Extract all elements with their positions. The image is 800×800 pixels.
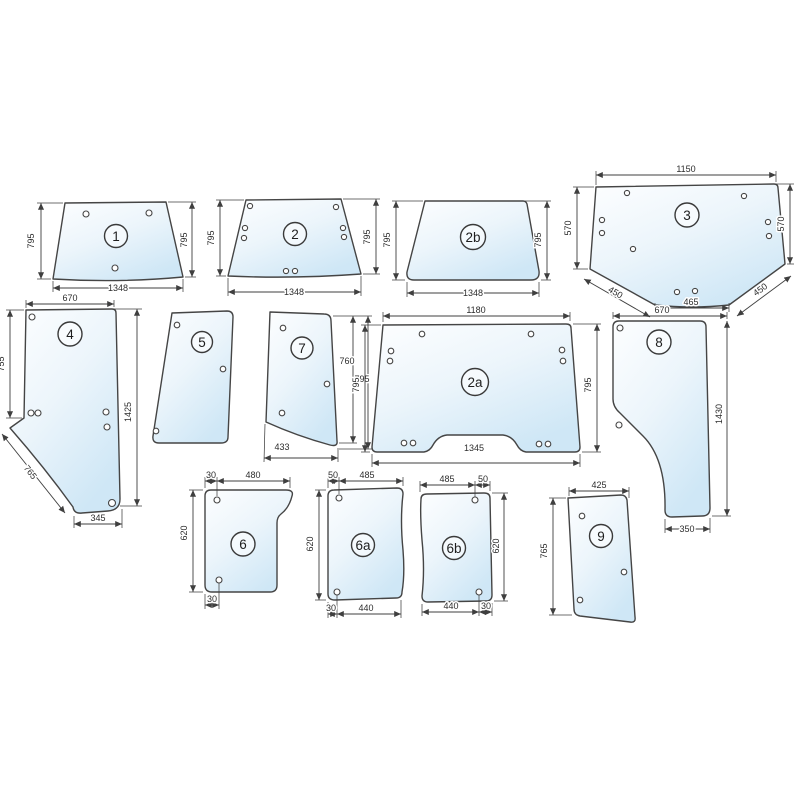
mounting-hole <box>765 219 770 224</box>
panel-9: 9 425 765 <box>539 480 635 622</box>
mounting-hole <box>472 497 478 503</box>
dim-value: 1345 <box>464 443 484 453</box>
dim-value: 570 <box>563 220 573 235</box>
dim-value: 795 <box>179 232 189 247</box>
glass-diagram-svg: 1 795 795 1348 2 <box>0 0 800 800</box>
panel-6a-dim-left: 620 <box>305 490 326 600</box>
mounting-hole <box>146 210 152 216</box>
dim-value: 570 <box>776 216 786 231</box>
panel-6-dim-left: 620 <box>179 490 203 592</box>
mounting-hole <box>279 410 285 416</box>
mounting-hole <box>334 589 340 595</box>
panel-5: 5 <box>153 311 233 443</box>
dim-value: 30 <box>206 470 216 480</box>
dim-value: 795 <box>206 230 216 245</box>
mounting-hole <box>333 204 338 209</box>
panel-5-number: 5 <box>198 335 206 350</box>
mounting-hole <box>577 597 583 603</box>
panel-8-dim-bottom: 350 <box>665 518 710 534</box>
panel-6: 6 30 480 620 30 <box>179 470 292 609</box>
panel-8: 8 670 1430 350 <box>613 305 731 534</box>
mounting-hole <box>560 358 566 364</box>
dim-value: 795 <box>533 232 543 247</box>
dim-value: 795 <box>362 229 372 244</box>
mounting-hole <box>324 381 330 387</box>
mounting-hole <box>29 314 35 320</box>
dim-value: 620 <box>179 525 189 540</box>
mounting-hole <box>28 410 34 416</box>
panel-8-number: 8 <box>655 335 663 350</box>
mounting-hole <box>220 366 226 372</box>
mounting-hole <box>387 358 393 364</box>
ext-line <box>264 424 265 462</box>
dim-value: 50 <box>328 470 338 480</box>
dim-value: 1425 <box>123 402 133 422</box>
mounting-hole <box>109 500 116 507</box>
panel-7-number: 7 <box>298 341 306 356</box>
panel-3-dim-top: 1150 <box>596 164 776 185</box>
panel-6-number: 6 <box>239 537 247 552</box>
dim-value: 485 <box>359 470 374 480</box>
panel-8-dim-right: 1430 <box>712 321 731 516</box>
dim-value: 345 <box>90 513 105 523</box>
dim-value: 440 <box>358 603 373 613</box>
mounting-hole <box>630 246 635 251</box>
dim-value: 795 <box>26 233 36 248</box>
panel-3-number: 3 <box>683 208 691 223</box>
mounting-hole <box>476 589 482 595</box>
mounting-hole <box>283 268 288 273</box>
panel-6a-dim-top: 485 <box>339 470 403 486</box>
dim-value: 1150 <box>676 164 695 174</box>
mounting-hole <box>153 428 159 434</box>
mounting-hole <box>579 513 585 519</box>
dim-value: 1348 <box>463 288 483 298</box>
mounting-hole <box>104 424 110 430</box>
mounting-hole <box>528 331 534 337</box>
mounting-hole <box>621 569 627 575</box>
dim-value: 1348 <box>108 283 128 293</box>
panel-4-dim-left: 755 <box>0 310 24 418</box>
dim-value: 50 <box>478 474 488 484</box>
mounting-hole <box>336 495 342 501</box>
mounting-hole <box>388 348 394 354</box>
mounting-hole <box>766 233 771 238</box>
mounting-hole <box>174 322 180 328</box>
dim-value: 795 <box>351 377 361 392</box>
panel-6a-dim-bottom: 440 <box>337 600 401 618</box>
mounting-hole <box>103 409 109 415</box>
mounting-hole <box>545 441 551 447</box>
panel-2a: 2a 1180 795 795 1345 <box>351 305 601 467</box>
dim-value: 433 <box>274 442 289 452</box>
dim-value: 670 <box>62 293 77 303</box>
dim-value: 30 <box>481 601 491 611</box>
mounting-hole <box>616 422 622 428</box>
dim-value: 425 <box>591 480 606 490</box>
mounting-hole <box>559 347 565 353</box>
dim-value: 795 <box>583 377 593 392</box>
mounting-hole <box>536 441 542 447</box>
mounting-hole <box>340 225 345 230</box>
panel-2a-number: 2a <box>467 375 483 390</box>
panel-6a: 6a 50 485 620 30 440 <box>305 470 404 618</box>
mounting-hole <box>692 288 697 293</box>
panel-2b: 2b 795 795 1348 <box>382 201 551 298</box>
dim-value: 765 <box>539 543 549 558</box>
mounting-hole <box>624 190 629 195</box>
panel-6b-dim-right: 620 <box>491 493 508 601</box>
panel-2: 2 795 795 1348 <box>206 199 380 297</box>
dim-value: 1348 <box>284 287 304 297</box>
mounting-hole <box>741 193 746 198</box>
diagram-canvas: 1 795 795 1348 2 <box>0 0 800 800</box>
mounting-hole <box>341 234 346 239</box>
mounting-hole <box>214 497 220 503</box>
mounting-hole <box>674 289 679 294</box>
mounting-hole <box>247 203 252 208</box>
panel-5-glass <box>153 311 233 443</box>
panel-6b-number: 6b <box>446 541 461 556</box>
panel-1-number: 1 <box>112 229 120 244</box>
panel-4: 4 670 755 1425 765 345 <box>0 293 142 528</box>
panel-3-dim-left: 570 <box>563 187 594 269</box>
dim-value: 30 <box>207 594 217 604</box>
mounting-hole <box>35 410 41 416</box>
dim-value: 755 <box>0 356 6 371</box>
mounting-hole <box>112 265 118 271</box>
panel-4-dim-top: 670 <box>26 293 114 308</box>
dim-value: 480 <box>245 470 260 480</box>
panel-6b-dim-bottom-offset: 30 <box>479 601 492 616</box>
panel-2b-number: 2b <box>465 230 480 245</box>
panel-9-glass <box>568 495 635 622</box>
mounting-hole <box>242 225 247 230</box>
mounting-hole <box>401 440 407 446</box>
panel-6a-number: 6a <box>355 538 371 553</box>
panel-2a-dim-top: 1180 <box>383 305 570 322</box>
mounting-hole <box>419 331 425 337</box>
mounting-hole <box>280 325 286 331</box>
mounting-hole <box>617 325 623 331</box>
panel-2b-dim-bottom: 1348 <box>407 282 539 298</box>
panel-9-number: 9 <box>597 529 605 544</box>
panel-6-dim-top: 480 <box>217 470 290 488</box>
panel-1: 1 795 795 1348 <box>26 202 196 293</box>
dim-value: 1180 <box>466 305 485 315</box>
dim-value: 465 <box>683 297 698 307</box>
dim-value: 1430 <box>714 404 724 424</box>
dim-value: 620 <box>491 538 501 553</box>
mounting-hole <box>410 440 416 446</box>
dim-value: 760 <box>339 356 354 366</box>
dim-value: 350 <box>679 524 694 534</box>
dim-value: 670 <box>654 305 669 315</box>
panel-6b-dim-top-offset: 50 <box>475 474 490 491</box>
dim-value: 30 <box>326 603 336 613</box>
mounting-hole <box>216 577 222 583</box>
panel-4-number: 4 <box>66 327 74 342</box>
panel-2-dim-bottom: 1348 <box>228 276 361 297</box>
mounting-hole <box>599 230 604 235</box>
panel-7-glass <box>266 312 337 446</box>
dim-value: 485 <box>439 474 454 484</box>
mounting-hole <box>599 217 604 222</box>
mounting-hole <box>292 268 297 273</box>
panel-9-dim-left: 765 <box>539 498 572 615</box>
mounting-hole <box>241 235 246 240</box>
mounting-hole <box>83 211 89 217</box>
panel-3: 3 1150 570 570 450 465 <box>563 164 794 317</box>
dim-value: 440 <box>443 601 458 611</box>
panel-2-number: 2 <box>291 227 299 242</box>
dim-value: 620 <box>305 536 315 551</box>
dim-value: 795 <box>382 232 392 247</box>
panel-6b: 6b 485 50 620 440 30 <box>420 474 508 616</box>
dim-value: 765 <box>22 463 39 481</box>
